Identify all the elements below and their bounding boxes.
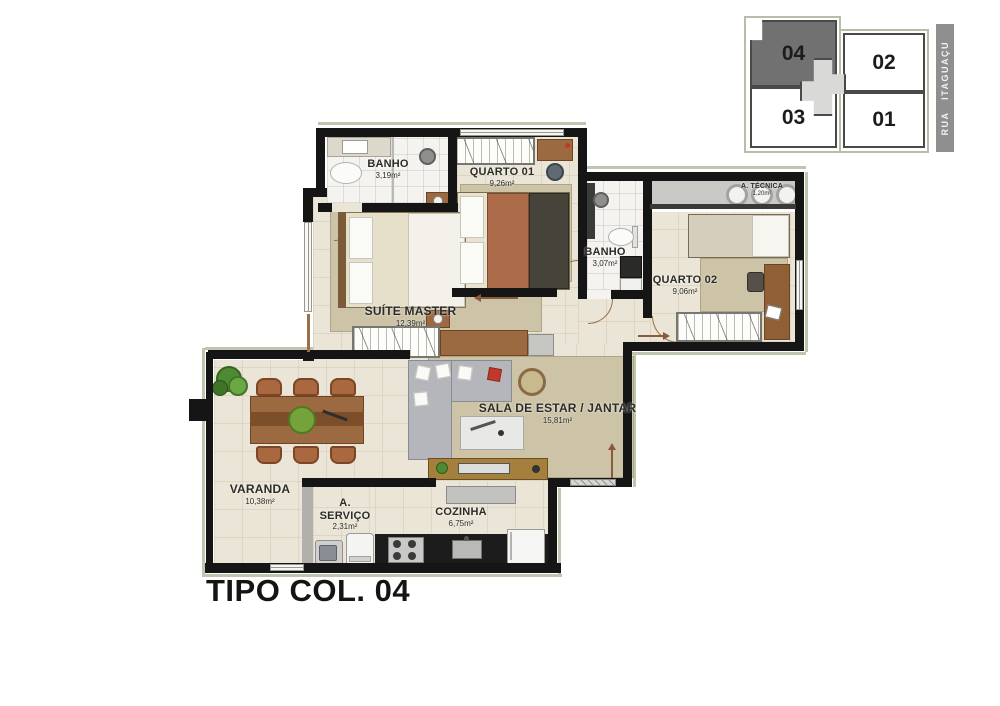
exterior-outline — [578, 166, 806, 169]
room-label-quarto-02: QUARTO 02 9,06m² — [635, 274, 735, 296]
wall — [578, 172, 804, 181]
exterior-outline — [632, 352, 806, 355]
plan-title: TIPO COL. 04 — [206, 573, 410, 609]
exterior-outline — [202, 348, 205, 576]
room-name: QUARTO 01 — [452, 166, 552, 179]
unit-number: 01 — [872, 108, 895, 132]
dining-chair — [293, 446, 319, 464]
dining-chair — [256, 378, 282, 396]
wardrobe — [455, 137, 535, 165]
bed-pillow-end — [752, 215, 789, 257]
room-area: 1,20m² — [720, 191, 804, 198]
flow-arrow-head — [470, 294, 481, 302]
room-name: SALA DE ESTAR / JANTAR — [470, 402, 645, 416]
flow-arrow-head — [663, 332, 674, 340]
pillow — [413, 391, 428, 406]
room-area: 9,06m² — [635, 287, 735, 296]
wardrobe — [676, 312, 762, 342]
wall — [623, 342, 804, 351]
plant-pot — [436, 462, 448, 474]
desk — [764, 264, 790, 340]
quarto-02-window — [796, 260, 803, 310]
exterior-outline — [805, 172, 808, 352]
room-area: 3,19m² — [348, 171, 428, 180]
entrance-arrow-head — [608, 439, 616, 450]
exterior-outline — [558, 488, 561, 574]
side-cabinet — [528, 334, 554, 356]
pillar — [189, 399, 208, 421]
burner — [393, 540, 401, 548]
key-plan: 04 02 03 01 — [744, 16, 938, 156]
tv — [458, 463, 510, 474]
quarto-01-window — [460, 129, 564, 136]
wall — [643, 172, 652, 318]
street-bar: RUA ITAGUAÇU — [936, 24, 954, 152]
pillow — [457, 365, 473, 381]
room-area: 6,75m² — [421, 519, 501, 528]
entrance-arrow — [611, 446, 613, 478]
area-tecnica-divider — [650, 204, 796, 209]
burner — [408, 540, 416, 548]
room-name: BANHO — [575, 246, 635, 259]
entrance-threshold — [570, 479, 616, 486]
room-name: BANHO — [348, 158, 428, 171]
room-label-varanda: VARANDA 10,38m² — [210, 483, 310, 506]
room-label-banho-2: BANHO 3,07m² — [575, 246, 635, 268]
coffee-table-decor — [498, 430, 504, 436]
bed-cover-dark — [529, 193, 569, 289]
pillow — [349, 262, 373, 304]
wall — [205, 563, 561, 573]
room-label-quarto-01: QUARTO 01 9,26m² — [452, 166, 552, 188]
pillow — [415, 365, 432, 382]
door-gap — [332, 203, 362, 212]
kitchen-pass-counter — [446, 486, 516, 504]
room-name: QUARTO 02 — [635, 274, 735, 287]
wall — [206, 352, 213, 572]
faucet — [464, 536, 469, 541]
burner — [408, 552, 416, 560]
exterior-outline — [318, 122, 586, 125]
dining-chair — [330, 378, 356, 396]
dining-chair — [330, 446, 356, 464]
plant — [228, 376, 248, 396]
plant — [212, 380, 228, 396]
kitchen-sink — [452, 540, 482, 559]
wall — [452, 288, 557, 297]
flow-arrow — [478, 297, 518, 299]
pillow — [349, 217, 373, 259]
room-label-sala: SALA DE ESTAR / JANTAR 15,81m² — [470, 402, 645, 425]
key-plan-unit-02: 02 — [843, 33, 925, 92]
unit-number: 04 — [782, 42, 805, 66]
wall — [302, 478, 436, 487]
room-label-suite-master: SUÍTE MASTER 12,39m² — [348, 305, 473, 328]
decor-dot — [565, 143, 570, 148]
suite-sideboard — [440, 330, 528, 356]
door-gap — [587, 290, 611, 299]
fridge — [507, 529, 545, 564]
sliding-door-leaf — [307, 314, 310, 352]
room-name: VARANDA — [210, 483, 310, 497]
flow-arrow — [638, 335, 664, 337]
key-plan-unit-01: 01 — [843, 92, 925, 148]
shower-fixture — [587, 183, 595, 239]
unit-number: 03 — [782, 106, 805, 130]
side-table — [518, 368, 546, 396]
room-name: COZINHA — [421, 506, 501, 519]
fridge-handle — [510, 532, 512, 560]
room-label-banho-1: BANHO 3,19m² — [348, 158, 428, 180]
laundry-tank-basin — [319, 545, 337, 561]
vase — [532, 465, 540, 473]
pillow — [435, 363, 451, 379]
room-label-area-servico: A. SERVIÇO 2,31m² — [316, 497, 374, 531]
pillow — [460, 196, 484, 238]
burner — [393, 552, 401, 560]
wall — [303, 188, 313, 222]
sink — [342, 140, 368, 154]
suite-window — [304, 222, 312, 312]
room-label-cozinha: COZINHA 6,75m² — [421, 506, 501, 528]
room-area: 3,07m² — [575, 259, 635, 268]
suite-bed-headboard — [338, 212, 346, 308]
washer-panel — [349, 556, 371, 562]
room-area: 15,81m² — [470, 416, 645, 425]
varanda-vent-window — [270, 564, 304, 571]
fruit-bowl — [288, 406, 316, 434]
unit-number: 02 — [872, 51, 895, 75]
wall — [548, 478, 557, 572]
room-name: SUÍTE MASTER — [348, 305, 473, 319]
red-pillow — [487, 367, 502, 382]
dining-chair — [256, 446, 282, 464]
floor-plan-page: BANHO 3,19m² QUARTO 01 9,26m² BANHO 3,07… — [0, 0, 1000, 706]
bed-cover-orange — [487, 193, 529, 289]
room-area: 12,39m² — [348, 319, 473, 328]
street-name: RUA ITAGUAÇU — [940, 41, 950, 136]
desk-chair — [747, 272, 764, 292]
room-area: 9,26m² — [452, 179, 552, 188]
pillow — [460, 242, 484, 284]
wall — [578, 128, 587, 298]
toilet — [608, 228, 634, 246]
room-name: A. SERVIÇO — [316, 497, 374, 522]
room-area: 2,31m² — [316, 522, 374, 531]
room-area: 10,38m² — [210, 497, 310, 506]
room-label-area-tecnica: A. TÉCNICA 1,20m² — [720, 183, 804, 198]
room-name: A. TÉCNICA — [720, 183, 804, 191]
wall — [316, 128, 325, 194]
shower-head — [593, 192, 609, 208]
dining-chair — [293, 378, 319, 396]
